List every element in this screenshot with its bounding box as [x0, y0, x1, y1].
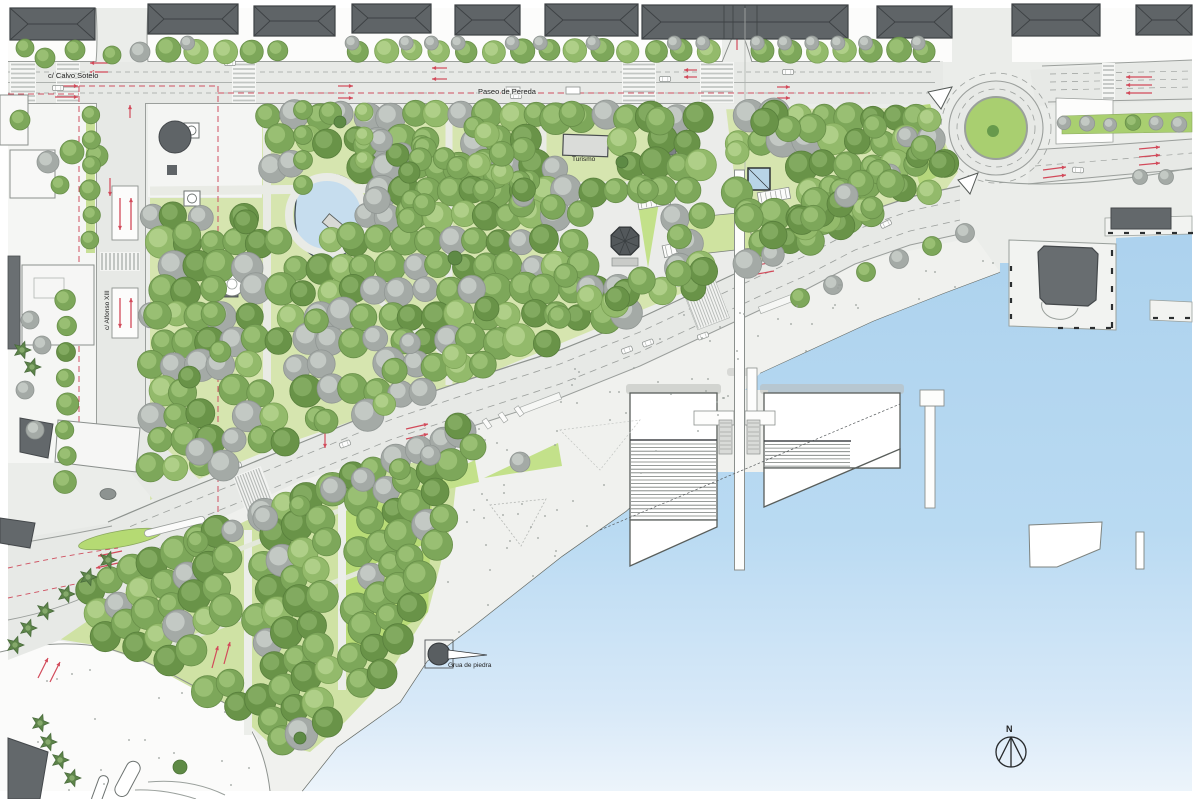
svg-text:Paseo de Pereda: Paseo de Pereda: [478, 87, 537, 96]
svg-text:Grua de piedra: Grua de piedra: [448, 662, 492, 669]
svg-text:Turismo: Turismo: [572, 156, 596, 163]
svg-text:c/ Alfonso XIII: c/ Alfonso XIII: [104, 290, 111, 330]
svg-text:N: N: [1006, 724, 1013, 734]
svg-text:c/ Calvo Sotelo: c/ Calvo Sotelo: [48, 71, 98, 80]
